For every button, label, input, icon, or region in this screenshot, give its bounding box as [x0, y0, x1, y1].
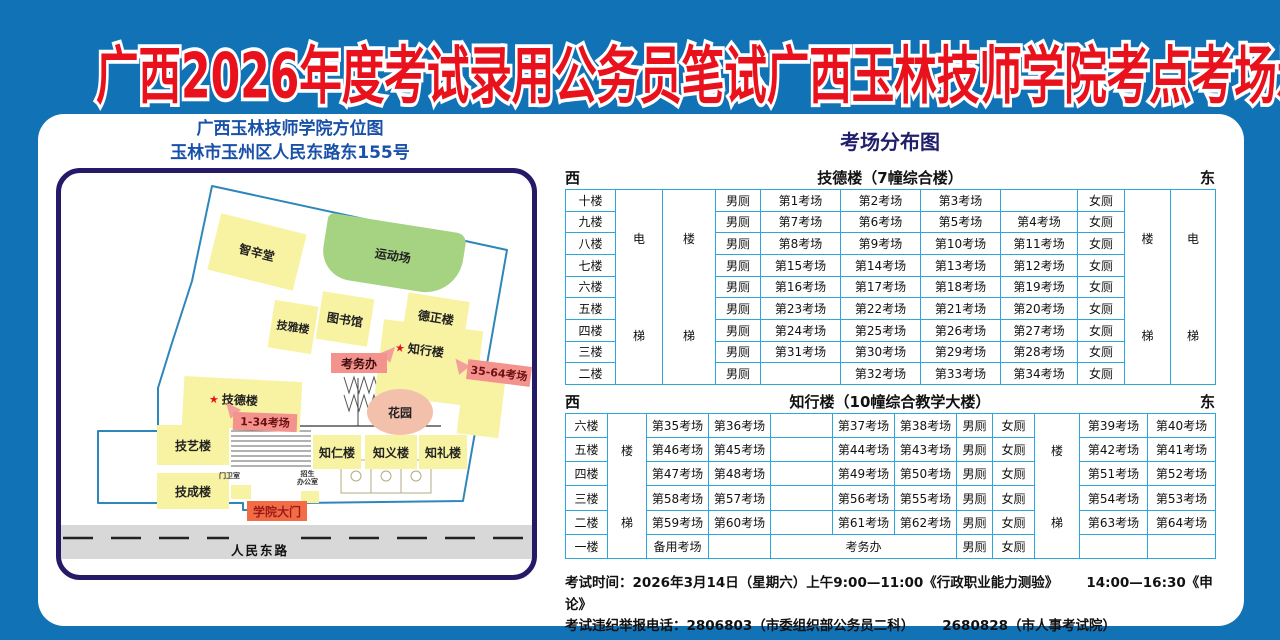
toilet-cell: 女厕	[1078, 211, 1125, 233]
exam-office-cell: 考务办	[771, 534, 957, 558]
shaft-char: 楼	[1141, 230, 1153, 247]
building-label: 知行楼	[407, 342, 444, 360]
guard-room-building	[231, 485, 251, 499]
stairs-shaft-cell: 楼梯	[608, 414, 647, 559]
empty-cell	[771, 438, 833, 462]
footer-notes: 考试时间：2026年3月14日（星期六）上午9:00—11:00《行政职业能力测…	[565, 573, 1215, 638]
room-cell: 第54考场	[1080, 486, 1148, 510]
room-cell: 第11考场	[1001, 233, 1078, 255]
elevator-shaft-cell: 电梯	[616, 190, 663, 385]
toilet-cell: 女厕	[993, 486, 1035, 510]
room-cell: 第64考场	[1148, 510, 1216, 534]
floor-cell: 三楼	[566, 486, 608, 510]
room-cell: 第28考场	[1001, 341, 1078, 363]
star-icon: ★	[209, 393, 220, 406]
building-jiyilou: 技艺楼	[157, 425, 229, 465]
room-cell: 第14考场	[841, 254, 921, 276]
room-cell: 第57考场	[709, 486, 771, 510]
content-panel: 广西玉林技师学院方位图 玉林市玉州区人民东路东155号	[38, 114, 1244, 626]
shaft-char: 梯	[1141, 327, 1153, 344]
room-cell: 第6考场	[841, 211, 921, 233]
room-cell: 第45考场	[709, 438, 771, 462]
toilet-cell: 女厕	[1078, 298, 1125, 320]
room-cell: 第61考场	[833, 510, 895, 534]
floor-cell: 九楼	[566, 211, 616, 233]
exam-time-line: 考试时间：2026年3月14日（星期六）上午9:00—11:00《行政职业能力测…	[565, 573, 1215, 616]
room-cell: 第17考场	[841, 276, 921, 298]
room-cell	[1001, 190, 1078, 212]
room-cell: 第58考场	[647, 486, 709, 510]
room-cell: 第31考场	[761, 341, 841, 363]
toilet-cell: 女厕	[993, 510, 1035, 534]
building-label: 知仁楼	[319, 444, 355, 461]
floor-cell: 六楼	[566, 276, 616, 298]
room-cell: 第4考场	[1001, 211, 1078, 233]
admissions-line2: 办公室	[297, 478, 318, 486]
building-label: 技雅楼	[275, 317, 310, 338]
toilet-cell: 男厕	[957, 438, 993, 462]
toilet-cell: 女厕	[1078, 363, 1125, 385]
floor-cell: 三楼	[566, 341, 616, 363]
report-phone-line: 考试违纪举报电话：2806803（市委组织部公务员二科）2680828（市人事考…	[565, 616, 1215, 638]
report-phone-text: 考试违纪举报电话：2806803（市委组织部公务员二科）	[565, 618, 914, 634]
map-header: 广西玉林技师学院方位图 玉林市玉州区人民东路东155号	[60, 118, 520, 166]
shaft-char: 梯	[1051, 514, 1063, 531]
empty-cell	[1080, 534, 1148, 558]
direction-east: 东	[1200, 391, 1215, 412]
shaft-char: 梯	[621, 514, 633, 531]
table-row: 三楼 第58考场 第57考场 第56考场 第55考场 男厕 女厕 第54考场 第…	[566, 486, 1216, 510]
toilet-cell: 男厕	[716, 276, 761, 298]
toilet-cell: 女厕	[993, 534, 1035, 558]
toilet-cell: 女厕	[1078, 276, 1125, 298]
direction-west: 西	[565, 167, 580, 188]
room-cell: 第37考场	[833, 414, 895, 438]
shaft-char: 楼	[621, 442, 633, 459]
toilet-cell: 女厕	[993, 462, 1035, 486]
shaft-char: 梯	[683, 327, 695, 344]
report-phone-2: 2680828（市人事考试院）	[942, 618, 1116, 634]
toilet-cell: 男厕	[716, 298, 761, 320]
toilet-cell: 男厕	[957, 462, 993, 486]
stairs-shaft-cell: 楼梯	[663, 190, 716, 385]
building-label: 技艺楼	[175, 437, 211, 454]
stairs-shaft-cell: 楼梯	[1035, 414, 1080, 559]
empty-cell	[1148, 534, 1216, 558]
building-label: 技成楼	[175, 483, 211, 500]
room-cell: 第43考场	[895, 438, 957, 462]
toilet-cell: 女厕	[993, 414, 1035, 438]
exam-time-text: 考试时间：2026年3月14日（星期六）上午9:00—11:00《行政职业能力测…	[565, 575, 1058, 591]
empty-cell	[771, 486, 833, 510]
zhixinglou-table: 六楼 楼梯 第35考场 第36考场 第37考场 第38考场 男厕 女厕 楼梯 第…	[565, 413, 1216, 559]
toilet-cell: 男厕	[957, 510, 993, 534]
toilet-cell: 男厕	[716, 211, 761, 233]
room-cell: 第62考场	[895, 510, 957, 534]
building1-name: 技德楼（7幢综合楼）	[565, 167, 1215, 188]
room-cell: 第36考场	[709, 414, 771, 438]
room-cell: 第20考场	[1001, 298, 1078, 320]
jidelou-table: 十楼 电梯 楼梯 男厕 第1考场 第2考场 第3考场 女厕 楼梯 电梯 九楼 男…	[565, 189, 1216, 385]
elevator-shaft-cell: 电梯	[1171, 190, 1216, 385]
room-cell: 第44考场	[833, 438, 895, 462]
room-cell: 第48考场	[709, 462, 771, 486]
shaft-char: 电	[1187, 230, 1199, 247]
room-cell: 第16考场	[761, 276, 841, 298]
building-label: 运动场	[374, 244, 412, 266]
toilet-cell: 女厕	[1078, 319, 1125, 341]
toilet-cell: 女厕	[1078, 233, 1125, 255]
floor-cell: 七楼	[566, 254, 616, 276]
road-markings	[61, 525, 532, 559]
room-cell: 第60考场	[709, 510, 771, 534]
building-zhiyilou: 知义楼	[365, 435, 417, 469]
garden: 花园	[367, 389, 433, 435]
room-cell: 第50考场	[895, 462, 957, 486]
toilet-cell: 男厕	[957, 534, 993, 558]
building-label: 知义楼	[373, 444, 409, 461]
building-label: 智辛堂	[237, 239, 276, 264]
empty-cell	[771, 462, 833, 486]
room-cell: 第59考场	[647, 510, 709, 534]
empty-cell	[761, 363, 841, 385]
room-cell: 第2考场	[841, 190, 921, 212]
admissions-office-label: 招生 办公室	[297, 470, 318, 487]
room-cell: 第19考场	[1001, 276, 1078, 298]
garden-label: 花园	[388, 404, 412, 421]
toilet-cell: 女厕	[1078, 254, 1125, 276]
toilet-cell: 女厕	[993, 438, 1035, 462]
room-cell: 第3考场	[921, 190, 1001, 212]
guard-room-label: 门卫室	[219, 472, 240, 480]
room-cell: 第9考场	[841, 233, 921, 255]
building2-name: 知行楼（10幢综合教学大楼）	[565, 391, 1215, 412]
room-cell: 第23考场	[761, 298, 841, 320]
empty-cell	[709, 534, 771, 558]
shaft-char: 电	[633, 230, 645, 247]
floor-cell: 六楼	[566, 414, 608, 438]
direction-east: 东	[1200, 167, 1215, 188]
building1-header: 西 技德楼（7幢综合楼） 东	[565, 167, 1215, 189]
shaft-char: 楼	[683, 230, 695, 247]
gate-label: 学院大门	[247, 501, 307, 521]
toilet-cell: 男厕	[716, 363, 761, 385]
distribution-section: 考场分布图 西 技德楼（7幢综合楼） 东 十楼 电梯 楼梯 男厕 第1考场 第2…	[565, 126, 1215, 638]
room-cell: 第63考场	[1080, 510, 1148, 534]
rooms-1-34-label: 1-34考场	[233, 412, 298, 432]
room-cell: 第51考场	[1080, 462, 1148, 486]
room-cell: 第15考场	[761, 254, 841, 276]
room-cell: 第49考场	[833, 462, 895, 486]
map-address: 玉林市玉州区人民东路东155号	[60, 142, 520, 166]
floor-cell: 一楼	[566, 534, 608, 558]
table-row: 十楼 电梯 楼梯 男厕 第1考场 第2考场 第3考场 女厕 楼梯 电梯	[566, 190, 1216, 212]
table-row: 五楼 第46考场 第45考场 第44考场 第43考场 男厕 女厕 第42考场 第…	[566, 438, 1216, 462]
building-label: 知礼楼	[425, 444, 461, 461]
steps-lines	[231, 431, 311, 466]
room-cell: 第34考场	[1001, 363, 1078, 385]
building-zhirenlou: 知仁楼	[313, 435, 361, 469]
exam-office-label: 考务办	[331, 353, 387, 373]
floor-cell: 四楼	[566, 462, 608, 486]
toilet-cell: 女厕	[1078, 341, 1125, 363]
room-cell: 第38考场	[895, 414, 957, 438]
road-name: 人民东路	[231, 540, 289, 559]
room-cell: 第7考场	[761, 211, 841, 233]
floor-cell: 二楼	[566, 363, 616, 385]
shaft-char: 梯	[633, 327, 645, 344]
room-cell: 第46考场	[647, 438, 709, 462]
floor-cell: 四楼	[566, 319, 616, 341]
room-cell: 第32考场	[841, 363, 921, 385]
toilet-cell: 男厕	[716, 341, 761, 363]
room-cell: 第18考场	[921, 276, 1001, 298]
map-title: 广西玉林技师学院方位图	[60, 118, 520, 142]
table-row: 六楼 楼梯 第35考场 第36考场 第37考场 第38考场 男厕 女厕 楼梯 第…	[566, 414, 1216, 438]
floor-cell: 十楼	[566, 190, 616, 212]
room-cell: 第8考场	[761, 233, 841, 255]
floor-cell: 八楼	[566, 233, 616, 255]
distribution-title: 考场分布图	[565, 126, 1215, 155]
room-cell: 第1考场	[761, 190, 841, 212]
page-title: 广西2026年度考试录用公务员笔试广西玉林技师学院考点考场示意图	[96, 26, 1184, 116]
toilet-cell: 男厕	[716, 190, 761, 212]
empty-cell	[771, 510, 833, 534]
floor-cell: 五楼	[566, 438, 608, 462]
room-cell: 第29考场	[921, 341, 1001, 363]
room-cell: 第10考场	[921, 233, 1001, 255]
room-cell: 第53考场	[1148, 486, 1216, 510]
room-cell: 第35考场	[647, 414, 709, 438]
empty-cell	[771, 414, 833, 438]
room-cell: 第33考场	[921, 363, 1001, 385]
toilet-cell: 男厕	[957, 486, 993, 510]
room-cell: 第24考场	[761, 319, 841, 341]
room-cell: 第26考场	[921, 319, 1001, 341]
room-cell: 第42考场	[1080, 438, 1148, 462]
campus-map: 智辛堂 运动场 技雅楼 图书馆 德正楼 ★知行楼 ★技德楼 技艺楼 知仁楼 知义…	[56, 168, 537, 580]
room-cell: 第13考场	[921, 254, 1001, 276]
toilet-cell: 男厕	[716, 319, 761, 341]
table-row: 一楼 备用考场 考务办 男厕 女厕	[566, 534, 1216, 558]
room-cell: 第5考场	[921, 211, 1001, 233]
stairs-shaft-cell: 楼梯	[1125, 190, 1171, 385]
floor-cell: 二楼	[566, 510, 608, 534]
table-row: 二楼 第59考场 第60考场 第61考场 第62考场 男厕 女厕 第63考场 第…	[566, 510, 1216, 534]
toilet-cell: 男厕	[957, 414, 993, 438]
room-cell: 第30考场	[841, 341, 921, 363]
room-cell: 第47考场	[647, 462, 709, 486]
direction-west: 西	[565, 391, 580, 412]
room-cell: 第40考场	[1148, 414, 1216, 438]
shaft-char: 梯	[1187, 327, 1199, 344]
room-cell: 第12考场	[1001, 254, 1078, 276]
room-cell: 第39考场	[1080, 414, 1148, 438]
room-cell: 第56考场	[833, 486, 895, 510]
room-cell: 第21考场	[921, 298, 1001, 320]
table-row: 四楼 第47考场 第48考场 第49考场 第50考场 男厕 女厕 第51考场 第…	[566, 462, 1216, 486]
room-cell: 备用考场	[647, 534, 709, 558]
road: 人民东路	[61, 525, 532, 559]
building-label: 图书馆	[326, 308, 364, 330]
shaft-char: 楼	[1051, 442, 1063, 459]
room-cell: 第55考场	[895, 486, 957, 510]
building-jiyalou: 技雅楼	[268, 300, 319, 354]
room-cell: 第27考场	[1001, 319, 1078, 341]
room-cell: 第25考场	[841, 319, 921, 341]
toilet-cell: 男厕	[716, 254, 761, 276]
building-zhililou: 知礼楼	[419, 435, 467, 469]
floor-cell: 五楼	[566, 298, 616, 320]
room-cell: 第41考场	[1148, 438, 1216, 462]
building2-header: 西 知行楼（10幢综合教学大楼） 东	[565, 391, 1215, 413]
room-cell: 第52考场	[1148, 462, 1216, 486]
building-tushuguan: 图书馆	[316, 291, 375, 347]
room-cell: 第22考场	[841, 298, 921, 320]
toilet-cell: 男厕	[716, 233, 761, 255]
poster: { "title": "广西2026年度考试录用公务员笔试广西玉林技师学院考点考…	[0, 0, 1280, 640]
toilet-cell: 女厕	[1078, 190, 1125, 212]
